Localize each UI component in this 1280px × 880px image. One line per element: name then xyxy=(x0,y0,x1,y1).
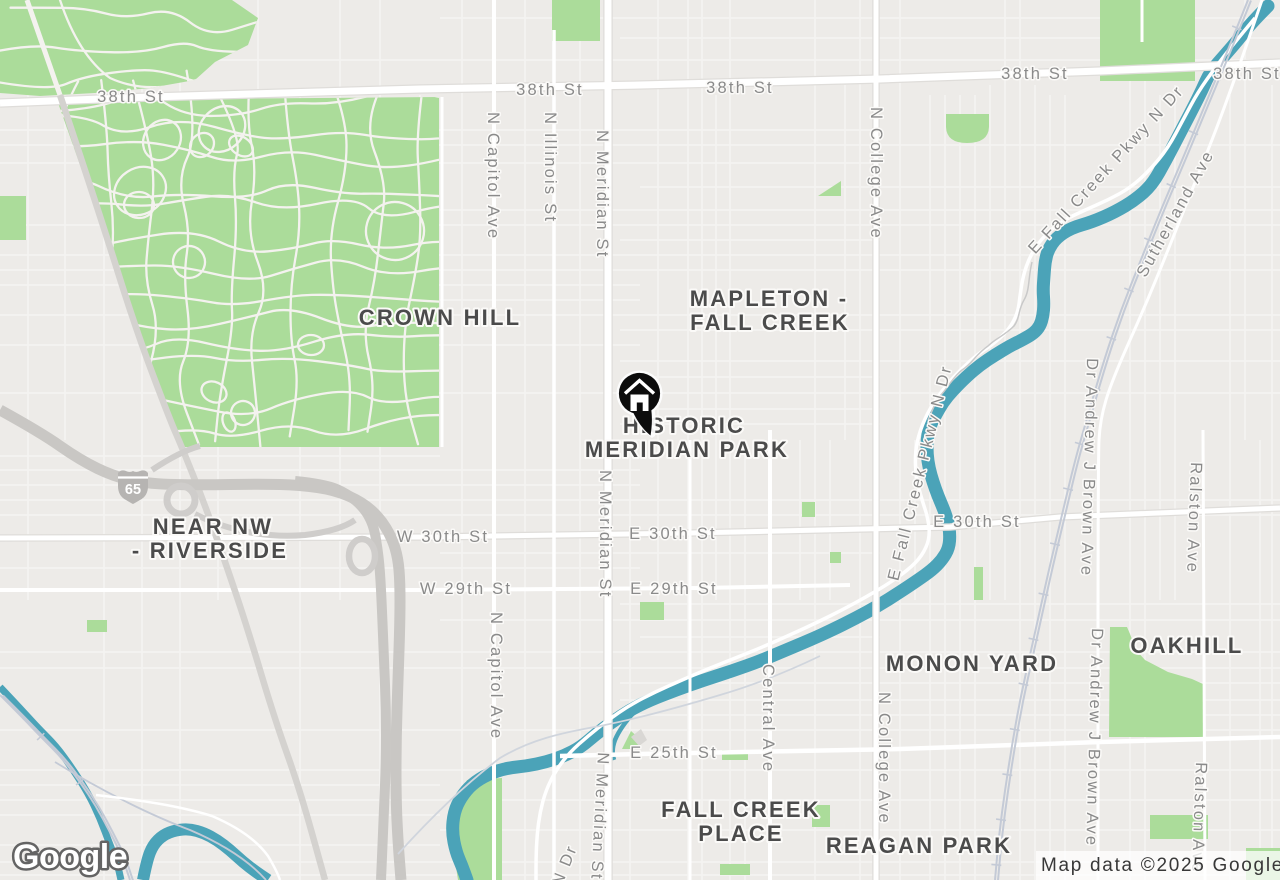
svg-text:N Meridian St: N Meridian St xyxy=(596,470,614,599)
svg-text:PLACE: PLACE xyxy=(698,821,784,846)
svg-text:E 29th St: E 29th St xyxy=(630,580,718,598)
svg-text:E 25th St: E 25th St xyxy=(630,744,718,762)
svg-text:N Illinois St: N Illinois St xyxy=(541,112,559,223)
svg-text:65: 65 xyxy=(125,482,141,498)
svg-text:N College Ave: N College Ave xyxy=(875,692,893,825)
svg-text:W 29th St: W 29th St xyxy=(420,580,512,598)
svg-text:E 30th St: E 30th St xyxy=(629,525,717,543)
svg-text:38th St: 38th St xyxy=(706,79,774,97)
svg-text:FALL CREEK: FALL CREEK xyxy=(661,797,821,822)
svg-text:MERIDIAN PARK: MERIDIAN PARK xyxy=(585,437,789,462)
svg-text:38th St: 38th St xyxy=(97,88,165,106)
svg-text:Map data ©2025 Google: Map data ©2025 Google xyxy=(1041,855,1280,876)
svg-text:Google: Google xyxy=(13,838,127,876)
svg-text:FALL CREEK: FALL CREEK xyxy=(690,310,850,335)
svg-text:MONON YARD: MONON YARD xyxy=(886,651,1058,676)
svg-text:E 30th St: E 30th St xyxy=(933,513,1021,531)
svg-text:N Meridian St: N Meridian St xyxy=(593,130,611,259)
svg-text:W 30th St: W 30th St xyxy=(397,528,489,546)
svg-text:N Capitol Ave: N Capitol Ave xyxy=(487,612,505,740)
svg-text:N Capitol Ave: N Capitol Ave xyxy=(484,112,502,240)
svg-text:CROWN HILL: CROWN HILL xyxy=(359,305,522,330)
svg-text:- RIVERSIDE: - RIVERSIDE xyxy=(132,538,288,563)
svg-text:OAKHILL: OAKHILL xyxy=(1130,633,1243,658)
svg-text:Central Ave: Central Ave xyxy=(759,664,777,773)
svg-text:38th St: 38th St xyxy=(516,81,584,99)
svg-text:MAPLETON -: MAPLETON - xyxy=(690,286,848,311)
svg-text:38th St: 38th St xyxy=(1001,65,1069,83)
svg-text:N College Ave: N College Ave xyxy=(867,107,885,240)
svg-text:NEAR NW: NEAR NW xyxy=(153,514,274,539)
svg-text:38th St: 38th St xyxy=(1213,65,1280,83)
svg-text:REAGAN PARK: REAGAN PARK xyxy=(826,833,1012,858)
